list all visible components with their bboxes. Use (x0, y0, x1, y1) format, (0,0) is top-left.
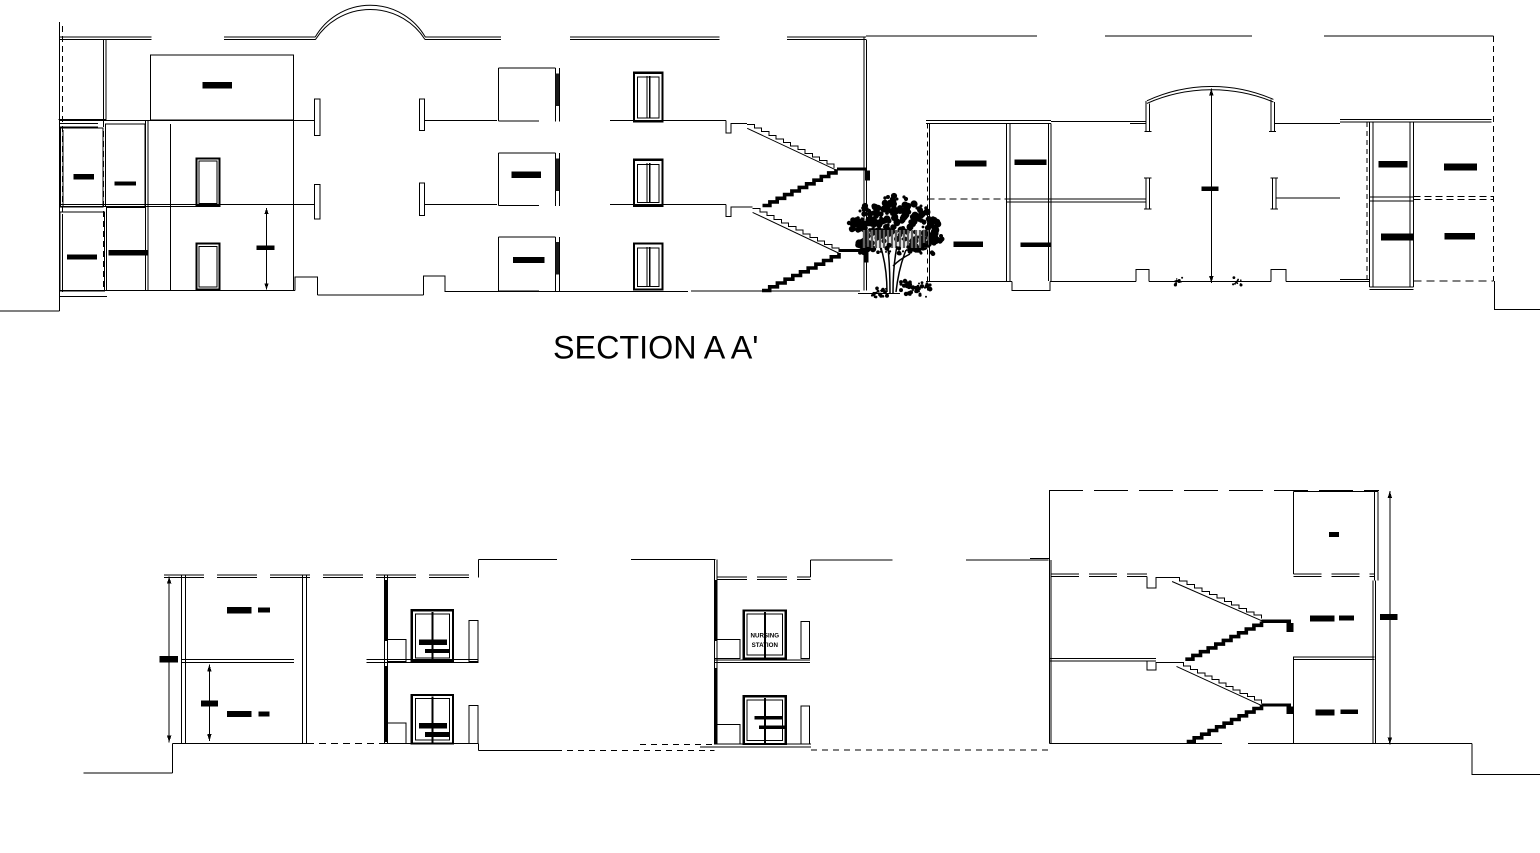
svg-text:SECTION A A': SECTION A A' (553, 330, 758, 366)
svg-text:STATION: STATION (752, 642, 779, 649)
svg-text:NURSING: NURSING (751, 633, 780, 640)
